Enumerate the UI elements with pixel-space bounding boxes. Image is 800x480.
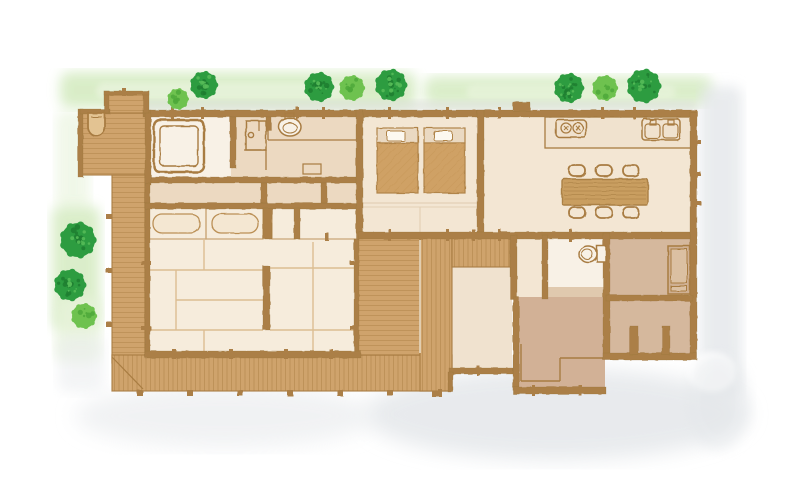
- tree-speckle: [81, 246, 85, 250]
- wall-opening-tick: [325, 233, 329, 241]
- tree-highlight: [68, 290, 70, 292]
- deck-east-top: [452, 238, 510, 267]
- bathtub: [154, 120, 204, 172]
- tree-speckle: [322, 92, 324, 94]
- wall-closet-stub-1: [630, 326, 638, 355]
- tree-speckle: [327, 86, 329, 88]
- wall-opening-tick: [201, 107, 204, 119]
- cabinet-drawer: [671, 286, 687, 291]
- tree-speckle: [201, 91, 206, 96]
- tree-highlight: [207, 75, 211, 79]
- tree-highlight: [562, 85, 564, 87]
- wall-opening-tick: [387, 390, 393, 396]
- wall-genkan-left: [513, 297, 519, 394]
- wall-storage-divider: [606, 295, 693, 301]
- tree-speckle: [610, 88, 614, 92]
- tree-highlight: [381, 89, 384, 92]
- wall-bedroom-left: [356, 110, 363, 239]
- wall-opening-tick: [569, 229, 572, 242]
- bed: [377, 128, 418, 193]
- tree-speckle: [78, 310, 83, 315]
- wall-bath-bottom: [151, 177, 357, 183]
- wall-step-top: [104, 91, 149, 95]
- futon: [212, 214, 258, 233]
- wall-tatami-east: [354, 239, 359, 353]
- tree-highlight: [70, 236, 74, 240]
- wall-closet-b: [294, 208, 300, 239]
- floor-plan-drawing: [0, 0, 800, 480]
- wall-opening-tick: [106, 268, 112, 273]
- wall-deck-left: [78, 109, 83, 177]
- bed: [424, 128, 465, 193]
- futon: [153, 214, 200, 233]
- dining-table: [562, 179, 648, 205]
- room-storage-lower: [606, 298, 692, 355]
- deck-east-walkway: [420, 238, 452, 391]
- gray-wash-left-bottom: [58, 336, 104, 392]
- wall-opening-tick: [579, 385, 582, 396]
- wall-opening-tick: [350, 326, 359, 330]
- tree-speckle: [197, 85, 202, 90]
- wall-opening-tick: [106, 214, 112, 219]
- tree-speckle: [176, 90, 181, 95]
- tree-speckle: [605, 85, 610, 90]
- tree-highlight: [81, 241, 85, 245]
- wall-closet-a: [263, 208, 272, 239]
- tree-highlight: [650, 80, 652, 82]
- wall-opening-tick: [692, 201, 701, 205]
- tree-speckle: [175, 95, 177, 97]
- tree-speckle: [322, 81, 325, 84]
- tree-highlight: [569, 83, 571, 85]
- tree-speckle: [345, 86, 350, 91]
- tree-highlight: [196, 76, 199, 79]
- wall-opening-tick: [296, 107, 299, 119]
- tree-highlight: [642, 86, 645, 89]
- tree-speckle: [308, 88, 313, 93]
- basin-shape: [88, 113, 105, 136]
- wall-tatami-divider: [263, 266, 270, 330]
- wall-opening-tick: [498, 229, 501, 241]
- tree-highlight: [317, 87, 318, 88]
- engawa-south: [112, 355, 452, 391]
- wall-opening-tick: [329, 349, 333, 359]
- wall-top-main: [143, 110, 697, 117]
- tree-speckle: [394, 88, 396, 90]
- wall-opening-tick: [350, 261, 359, 265]
- tree-speckle: [354, 78, 358, 82]
- bed-duvet-texture: [424, 143, 465, 193]
- tree-highlight: [559, 83, 562, 86]
- wall-opening-tick: [106, 322, 112, 327]
- wall-opening-tick: [388, 107, 391, 119]
- wall-opening-tick: [237, 390, 243, 396]
- wall-opening-tick: [229, 349, 233, 359]
- tree-speckle: [83, 315, 85, 317]
- tree-highlight: [77, 240, 81, 244]
- tree-highlight: [389, 88, 393, 92]
- wall-corridor-stub: [448, 372, 453, 392]
- wall-opening-tick: [141, 261, 151, 265]
- tree-speckle: [397, 90, 400, 93]
- tree-highlight: [398, 83, 403, 88]
- wall-bath-left: [145, 110, 151, 185]
- toilet: [579, 246, 606, 262]
- tree-speckle: [637, 80, 640, 83]
- tree-speckle: [386, 95, 389, 98]
- tree-speckle: [201, 86, 203, 88]
- wall-opening-tick: [438, 389, 442, 397]
- cabinet-shelf: [671, 249, 687, 283]
- tree-speckle: [646, 73, 649, 76]
- wall-opening-tick: [498, 107, 501, 119]
- wall-deck-top-right: [510, 235, 517, 299]
- wall-opening-tick: [141, 326, 151, 330]
- tree-speckle: [345, 83, 347, 85]
- outdoor-basin: [88, 113, 105, 136]
- wall-opening-tick: [432, 391, 438, 397]
- tree-speckle: [77, 279, 81, 283]
- tree-speckle: [648, 84, 651, 87]
- wall-opening-tick: [532, 385, 535, 396]
- wall-opening-tick: [187, 390, 193, 396]
- tree-speckle: [86, 313, 92, 319]
- tree-highlight: [391, 83, 393, 85]
- room-corridor: [452, 265, 512, 370]
- tree-highlight: [572, 90, 575, 93]
- gray-wash-bottom-left: [75, 384, 375, 448]
- wall-opening-tick: [601, 107, 604, 119]
- wall-tatami-top: [145, 203, 360, 209]
- wall-top-bump: [513, 102, 530, 111]
- tree-speckle: [603, 93, 609, 99]
- wall-bath-divider: [230, 117, 236, 168]
- tree-highlight: [567, 92, 571, 96]
- deck-upper-left-step-base: [106, 93, 148, 113]
- tree-speckle: [569, 77, 573, 81]
- wall-opening-tick: [477, 366, 480, 376]
- tree-highlight: [203, 84, 208, 89]
- wall-opening-tick: [446, 229, 449, 241]
- tree-highlight: [75, 288, 77, 290]
- tree-speckle: [63, 282, 68, 287]
- tree-speckle: [65, 293, 68, 296]
- tree-highlight: [68, 278, 71, 281]
- tree-highlight: [560, 93, 563, 96]
- wall-opening-tick: [388, 229, 391, 241]
- tree-speckle: [569, 87, 572, 90]
- bathtub-outer: [154, 120, 204, 172]
- wall-opening-tick: [284, 349, 288, 359]
- tree-speckle: [78, 284, 81, 287]
- wall-corridor-stub-a: [261, 183, 267, 203]
- engawa-west-base: [112, 175, 145, 363]
- wall-storage-bottom: [603, 353, 697, 360]
- tree-highlight: [313, 80, 316, 83]
- deck-east-inner: [358, 238, 420, 355]
- tree-highlight: [200, 81, 204, 85]
- tree-highlight: [83, 230, 86, 233]
- tree-speckle: [572, 83, 575, 86]
- tree-speckle: [596, 90, 601, 95]
- gray-wash-corner: [686, 354, 750, 450]
- tree-highlight: [88, 242, 91, 245]
- wall-opening-tick: [472, 229, 475, 241]
- tree-speckle: [57, 282, 60, 285]
- tree-speckle: [312, 84, 315, 87]
- tree-speckle: [653, 91, 656, 94]
- deck-east-top-base: [452, 238, 510, 267]
- bed-duvet-texture: [377, 143, 418, 193]
- tree-highlight: [82, 237, 85, 240]
- wall-south-main: [358, 232, 697, 239]
- deck-upper-left-step: [106, 93, 148, 113]
- wall-corridor-stub-b: [321, 183, 327, 203]
- storage-cabinet: [668, 246, 690, 294]
- wall-tatami-south: [145, 351, 361, 358]
- tree-highlight: [638, 88, 642, 92]
- wall-opening-tick: [337, 390, 343, 396]
- wall-opening-tick: [122, 88, 126, 96]
- tree-highlight: [68, 282, 72, 286]
- wall-closet-stub-2: [662, 326, 670, 355]
- room-toilet: [546, 237, 606, 289]
- wall-opening-tick: [172, 349, 176, 359]
- pillow: [434, 131, 452, 141]
- tree-highlight: [633, 82, 635, 84]
- tree-speckle: [310, 83, 312, 85]
- wall-opening-tick: [322, 107, 325, 119]
- wall-corridor-bottom: [449, 368, 513, 374]
- futon-shape: [212, 214, 258, 233]
- tree-speckle: [647, 76, 649, 78]
- toilet-tank: [597, 246, 606, 262]
- tree-highlight: [391, 73, 394, 76]
- tree-speckle: [84, 308, 86, 310]
- engawa-west: [112, 175, 145, 363]
- wall-toilet-left: [542, 235, 548, 299]
- wall-opening-tick: [692, 140, 701, 144]
- tree-speckle: [604, 85, 606, 87]
- tree-speckle: [631, 86, 634, 89]
- wall-genkan-bottom: [513, 387, 606, 394]
- tree-highlight: [387, 77, 391, 81]
- floor-plan-canvas: [0, 0, 800, 480]
- tree-highlight: [638, 75, 640, 77]
- tree-highlight: [317, 83, 319, 85]
- tree-highlight: [640, 80, 644, 84]
- tree-highlight: [571, 96, 573, 98]
- tree-speckle: [396, 78, 400, 82]
- pillow: [387, 131, 405, 141]
- wall-opening-tick: [137, 390, 143, 396]
- tree-speckle: [176, 98, 180, 102]
- wall-opening-tick: [633, 107, 636, 119]
- wall-right-outer: [690, 112, 697, 360]
- engawa-south-base: [112, 355, 452, 391]
- tree-highlight: [638, 85, 640, 87]
- wall-opening-tick: [692, 172, 701, 176]
- futon-shape: [153, 214, 200, 233]
- tree-highlight: [325, 88, 327, 90]
- tree-speckle: [171, 94, 175, 98]
- tree-highlight: [73, 290, 76, 293]
- tree-highlight: [76, 236, 79, 239]
- tree-speckle: [71, 227, 77, 233]
- wall-bedroom-right: [477, 110, 484, 237]
- tree-speckle: [635, 81, 637, 83]
- wall-opening-tick: [287, 390, 293, 396]
- wall-opening-tick: [446, 107, 449, 119]
